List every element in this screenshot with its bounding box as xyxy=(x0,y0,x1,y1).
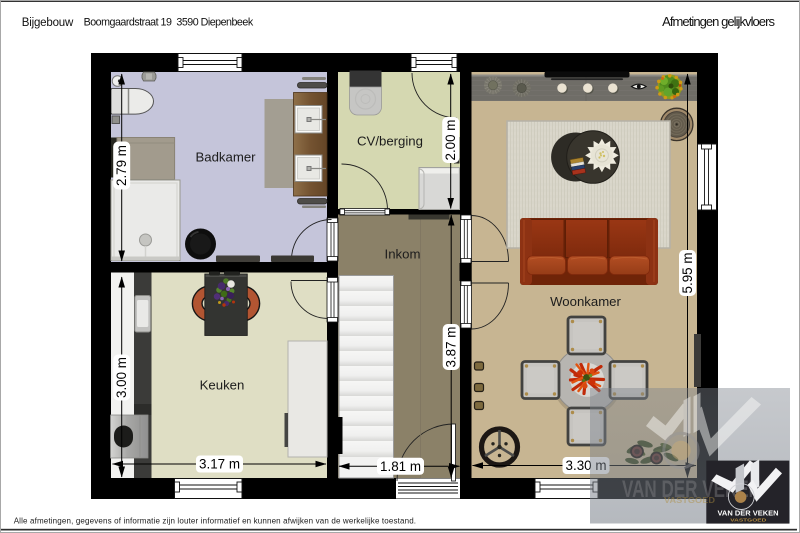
svg-text:2.00 m: 2.00 m xyxy=(443,120,458,161)
svg-text:Afmetingen gelijkvloers: Afmetingen gelijkvloers xyxy=(662,14,775,29)
svg-text:CV/berging: CV/berging xyxy=(357,134,423,149)
svg-text:1.81 m: 1.81 m xyxy=(380,459,421,474)
svg-text:Woonkamer: Woonkamer xyxy=(550,294,621,309)
svg-text:VASTGOED: VASTGOED xyxy=(664,496,715,505)
svg-text:Keuken: Keuken xyxy=(200,378,245,393)
svg-text:5.95 m: 5.95 m xyxy=(680,253,695,294)
svg-text:3.87 m: 3.87 m xyxy=(444,327,459,368)
svg-text:Badkamer: Badkamer xyxy=(195,150,256,165)
svg-text:VASTGOED: VASTGOED xyxy=(730,518,767,523)
svg-text:3.17 m: 3.17 m xyxy=(199,457,240,472)
svg-text:Boomgaardstraat 19 3590 Diepe: Boomgaardstraat 19 3590 Diepenbeek xyxy=(84,17,254,29)
svg-text:3.00 m: 3.00 m xyxy=(114,357,129,398)
svg-text:Alle afmetingen, gegevens of i: Alle afmetingen, gegevens of informatie … xyxy=(14,517,417,526)
svg-text:Bijgebouw: Bijgebouw xyxy=(22,17,74,29)
svg-text:VAN DER VEKEN: VAN DER VEKEN xyxy=(718,508,779,517)
svg-text:Inkom: Inkom xyxy=(385,247,421,262)
svg-text:2.79 m: 2.79 m xyxy=(114,145,129,186)
